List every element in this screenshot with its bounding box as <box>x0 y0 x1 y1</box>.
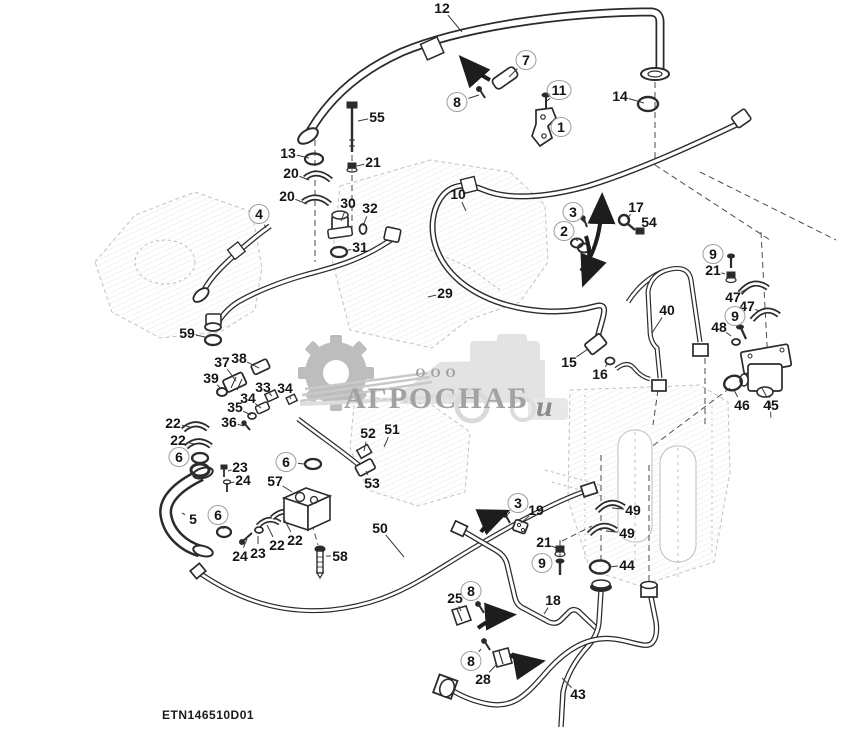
watermark-name: АГРОСНАБ <box>344 384 529 414</box>
callout-20-10: 20 <box>279 189 295 203</box>
callout-35-35: 35 <box>227 400 243 414</box>
callout-49-65: 49 <box>619 526 635 540</box>
callout-46-39: 46 <box>734 398 750 412</box>
callout-44-63: 44 <box>619 558 635 572</box>
callout-30-12: 30 <box>340 196 356 210</box>
callout-21-61: 21 <box>536 535 552 549</box>
callout-57-47: 57 <box>267 474 283 488</box>
callout-36-36: 36 <box>221 415 237 429</box>
callout-11-3: 11 <box>547 80 572 100</box>
callout-1-4: 1 <box>551 117 572 137</box>
callout-51-49: 51 <box>384 422 400 436</box>
callout-17-18: 17 <box>628 200 644 214</box>
callout-40-27: 40 <box>659 303 675 317</box>
callout-4-11: 4 <box>249 204 270 224</box>
callout-22-55: 22 <box>269 538 285 552</box>
parts-diagram-page: 1278111145513212020430323110321754921474… <box>0 0 841 731</box>
callout-6-46: 6 <box>276 452 297 472</box>
callout-3-59: 3 <box>508 493 529 513</box>
callout-37-30: 37 <box>214 355 230 369</box>
callout-59-28: 59 <box>179 326 195 340</box>
callout-24-45: 24 <box>235 473 251 487</box>
callout-8-69: 8 <box>461 651 482 671</box>
callout-45-40: 45 <box>763 398 779 412</box>
callout-9-24: 9 <box>725 306 746 326</box>
callout-2-17: 2 <box>554 221 575 241</box>
callout-48-25: 48 <box>711 320 727 334</box>
callout-53-50: 53 <box>364 476 380 490</box>
callout-32-13: 32 <box>362 201 378 215</box>
callout-6-43: 6 <box>169 447 190 467</box>
callout-54-19: 54 <box>641 215 657 229</box>
callout-21-21: 21 <box>705 263 721 277</box>
callout-34-33: 34 <box>277 381 293 395</box>
callout-13-7: 13 <box>280 146 296 160</box>
callout-22-56: 22 <box>287 533 303 547</box>
callout-14-5: 14 <box>612 89 628 103</box>
callout-9-20: 9 <box>703 244 724 264</box>
callout-28-70: 28 <box>475 672 491 686</box>
callout-5-51: 5 <box>189 512 197 526</box>
callout-39-31: 39 <box>203 371 219 385</box>
callout-24-53: 24 <box>232 549 248 563</box>
watermark-ooo: ООО <box>403 366 473 379</box>
callout-58-57: 58 <box>332 549 348 563</box>
callout-38-29: 38 <box>231 351 247 365</box>
callout-20-9: 20 <box>283 166 299 180</box>
callout-8-67: 8 <box>461 581 482 601</box>
callout-8-2: 8 <box>447 92 468 112</box>
callout-22-42: 22 <box>170 433 186 447</box>
callout-52-48: 52 <box>360 426 376 440</box>
callout-21-8: 21 <box>365 155 381 169</box>
callout-29-26: 29 <box>437 286 453 300</box>
callout-49-64: 49 <box>625 503 641 517</box>
drawing-number: ETN146510D01 <box>162 709 254 721</box>
callout-31-14: 31 <box>352 240 368 254</box>
callout-22-41: 22 <box>165 416 181 430</box>
callout-6-52: 6 <box>208 505 229 525</box>
watermark-suffix: u <box>536 392 553 422</box>
callout-43-71: 43 <box>570 687 586 701</box>
callout-12-0: 12 <box>434 1 450 15</box>
callout-23-54: 23 <box>250 546 266 560</box>
callout-9-62: 9 <box>532 553 553 573</box>
callout-16-38: 16 <box>592 367 608 381</box>
callout-15-37: 15 <box>561 355 577 369</box>
callout-10-15: 10 <box>450 187 466 201</box>
callout-55-6: 55 <box>369 110 385 124</box>
callout-50-58: 50 <box>372 521 388 535</box>
callout-7-1: 7 <box>516 50 537 70</box>
callout-3-16: 3 <box>563 202 584 222</box>
callout-19-60: 19 <box>528 503 544 517</box>
callout-33-32: 33 <box>255 380 271 394</box>
callout-18-68: 18 <box>545 593 561 607</box>
